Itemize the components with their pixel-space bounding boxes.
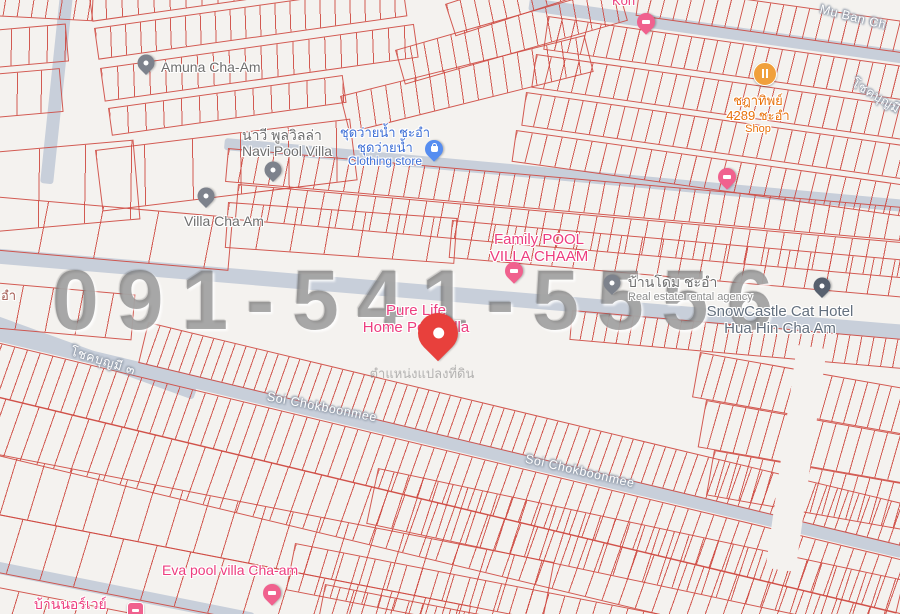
pin-dot-icon	[202, 192, 209, 199]
label-navi-line2: Navi Pool Villa	[242, 144, 332, 160]
lodging-pin-koh[interactable]	[633, 9, 658, 34]
bed-icon	[718, 168, 736, 186]
label-pure-life-line1: Pure Life	[355, 303, 477, 320]
label-parcel-caption: ตำแหน่งแปลงที่ดิน	[352, 367, 492, 382]
label-family-pool-villa[interactable]: Family POOL VILLA CHAAM	[468, 232, 610, 266]
pin-dot-icon	[430, 325, 446, 341]
lodging-pin-eva[interactable]	[259, 580, 284, 605]
store-pin-clothing[interactable]	[421, 136, 446, 161]
label-villa-cha-am[interactable]: Villa Cha Am	[178, 214, 270, 230]
fork-knife-icon	[762, 69, 764, 78]
bed-icon	[132, 609, 139, 612]
lodging-pin-mid[interactable]	[714, 164, 739, 189]
label-clothing-line3: Clothing store	[330, 155, 440, 168]
lodging-square-icon-baan-norway[interactable]	[127, 602, 144, 614]
bed-icon	[263, 584, 281, 602]
label-clothing-line2: ชุดว่ายน้ำ	[330, 141, 440, 156]
label-shop[interactable]: ชฎาทิพย์ 4289 ชะอำ Shop	[702, 94, 814, 135]
label-navi[interactable]: นาวี พูลวิลล่า Navi Pool Villa	[242, 128, 332, 159]
map-canvas[interactable]: 091-541-5556 Soi Chokboonmee Soi Chokboo…	[0, 0, 900, 614]
label-clothing-line1: ชุดว่ายน้ำ ชะอำ	[330, 126, 440, 141]
label-family-line2: VILLA CHAAM	[468, 249, 610, 266]
label-shop-line3: Shop	[702, 123, 814, 135]
bed-icon	[505, 262, 523, 280]
label-pure-life-line2: Home Pool Villa	[355, 320, 477, 337]
pin-dot-icon	[818, 282, 825, 289]
pin-dot-icon	[608, 279, 615, 286]
parcel-band	[0, 0, 94, 21]
label-snowcastle-line1: SnowCastle Cat Hotel	[690, 304, 870, 321]
pin-dot-icon	[142, 59, 149, 66]
parcel-band	[0, 24, 69, 68]
label-baan-norway[interactable]: บ้านนอร์เวย์	[34, 597, 107, 613]
label-snowcastle[interactable]: SnowCastle Cat Hotel Hua Hin Cha Am	[690, 304, 870, 338]
label-cha-am-partial: ะอำ	[0, 289, 16, 304]
shopping-bag-icon	[425, 140, 443, 158]
restaurant-pin[interactable]	[753, 62, 777, 86]
label-pure-life[interactable]: Pure Life Home Pool Villa	[355, 303, 477, 337]
label-koh-partial[interactable]: Koh	[612, 0, 635, 9]
label-baan-dome-sub: Real estate rental agency	[628, 291, 753, 303]
lodging-pin-family[interactable]	[501, 258, 526, 283]
pin-dot-icon	[269, 166, 276, 173]
label-shop-line1: ชฎาทิพย์	[702, 94, 814, 109]
label-navi-line1: นาวี พูลวิลล่า	[242, 128, 332, 144]
label-family-line1: Family POOL	[468, 232, 610, 249]
label-shop-line2: 4289 ชะอำ	[702, 109, 814, 124]
label-snowcastle-line2: Hua Hin Cha Am	[690, 321, 870, 338]
parcel-band	[0, 68, 64, 118]
bed-icon	[637, 13, 655, 31]
label-eva-pool-villa[interactable]: Eva pool villa Cha-am	[162, 563, 298, 579]
label-baan-dome-name: บ้านโดม ชะอำ	[628, 275, 753, 291]
label-clothing-store[interactable]: ชุดว่ายน้ำ ชะอำ ชุดว่ายน้ำ Clothing stor…	[330, 126, 440, 169]
label-amuna[interactable]: Amuna Cha-Am	[161, 60, 261, 76]
label-baan-dome[interactable]: บ้านโดม ชะอำ Real estate rental agency	[628, 275, 753, 303]
